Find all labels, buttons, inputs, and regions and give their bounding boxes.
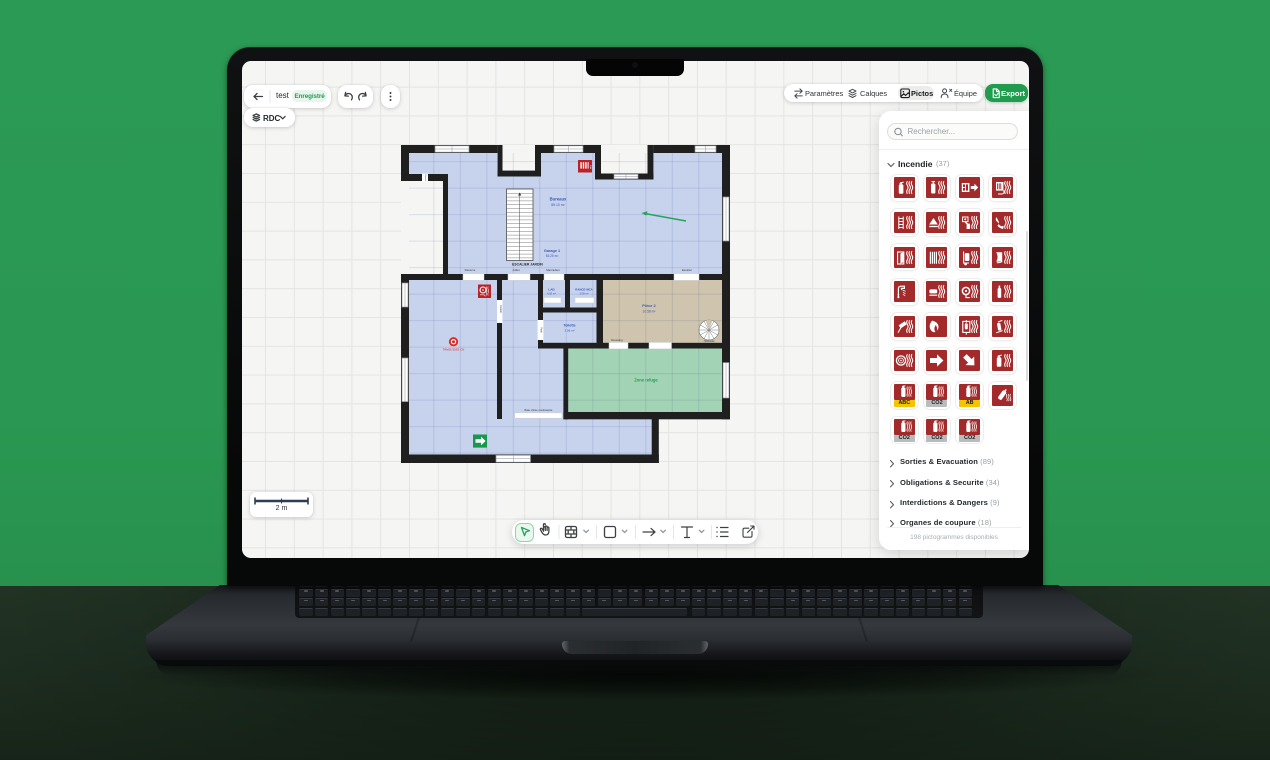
svg-text:Zone refuge: Zone refuge <box>634 378 658 383</box>
svg-text:53.25 m²: 53.25 m² <box>546 254 559 258</box>
svg-text:RIA: RIA <box>589 165 592 169</box>
svg-text:Entrée: Entrée <box>424 175 427 182</box>
svg-text:4.05 m²: 4.05 m² <box>547 292 556 296</box>
svg-text:Hélicoïdal: Hélicoïdal <box>704 340 715 343</box>
svg-text:10.58 m²: 10.58 m² <box>642 310 656 314</box>
svg-text:Toilette: Toilette <box>563 324 575 328</box>
svg-text:Bureaux: Bureaux <box>550 197 567 202</box>
svg-text:Juillet: Juillet <box>512 268 520 272</box>
svg-text:Baie vitrée coulissante: Baie vitrée coulissante <box>525 408 553 412</box>
svg-text:LAB: LAB <box>548 288 555 292</box>
svg-text:Pièce 2: Pièce 2 <box>642 303 656 308</box>
svg-text:Réserve: Réserve <box>465 268 476 272</box>
svg-text:Escalier: Escalier <box>682 268 692 272</box>
svg-text:Garage 1: Garage 1 <box>544 249 560 253</box>
svg-text:RANGE-MCA: RANGE-MCA <box>575 288 592 292</box>
svg-text:2.08 m²: 2.08 m² <box>579 292 588 296</box>
svg-text:Couloir: Couloir <box>499 305 503 313</box>
svg-text:Dressing: Dressing <box>611 338 623 342</box>
svg-text:Marcadieu: Marcadieu <box>546 268 560 272</box>
svg-text:3.06 m²: 3.06 m² <box>564 329 574 333</box>
svg-text:TAMIS 5563 CN: TAMIS 5563 CN <box>443 348 465 352</box>
svg-text:Porte: Porte <box>540 327 543 333</box>
svg-text:85.10 m²: 85.10 m² <box>551 203 565 207</box>
svg-text:ESCALIER JARDIN: ESCALIER JARDIN <box>512 263 543 267</box>
